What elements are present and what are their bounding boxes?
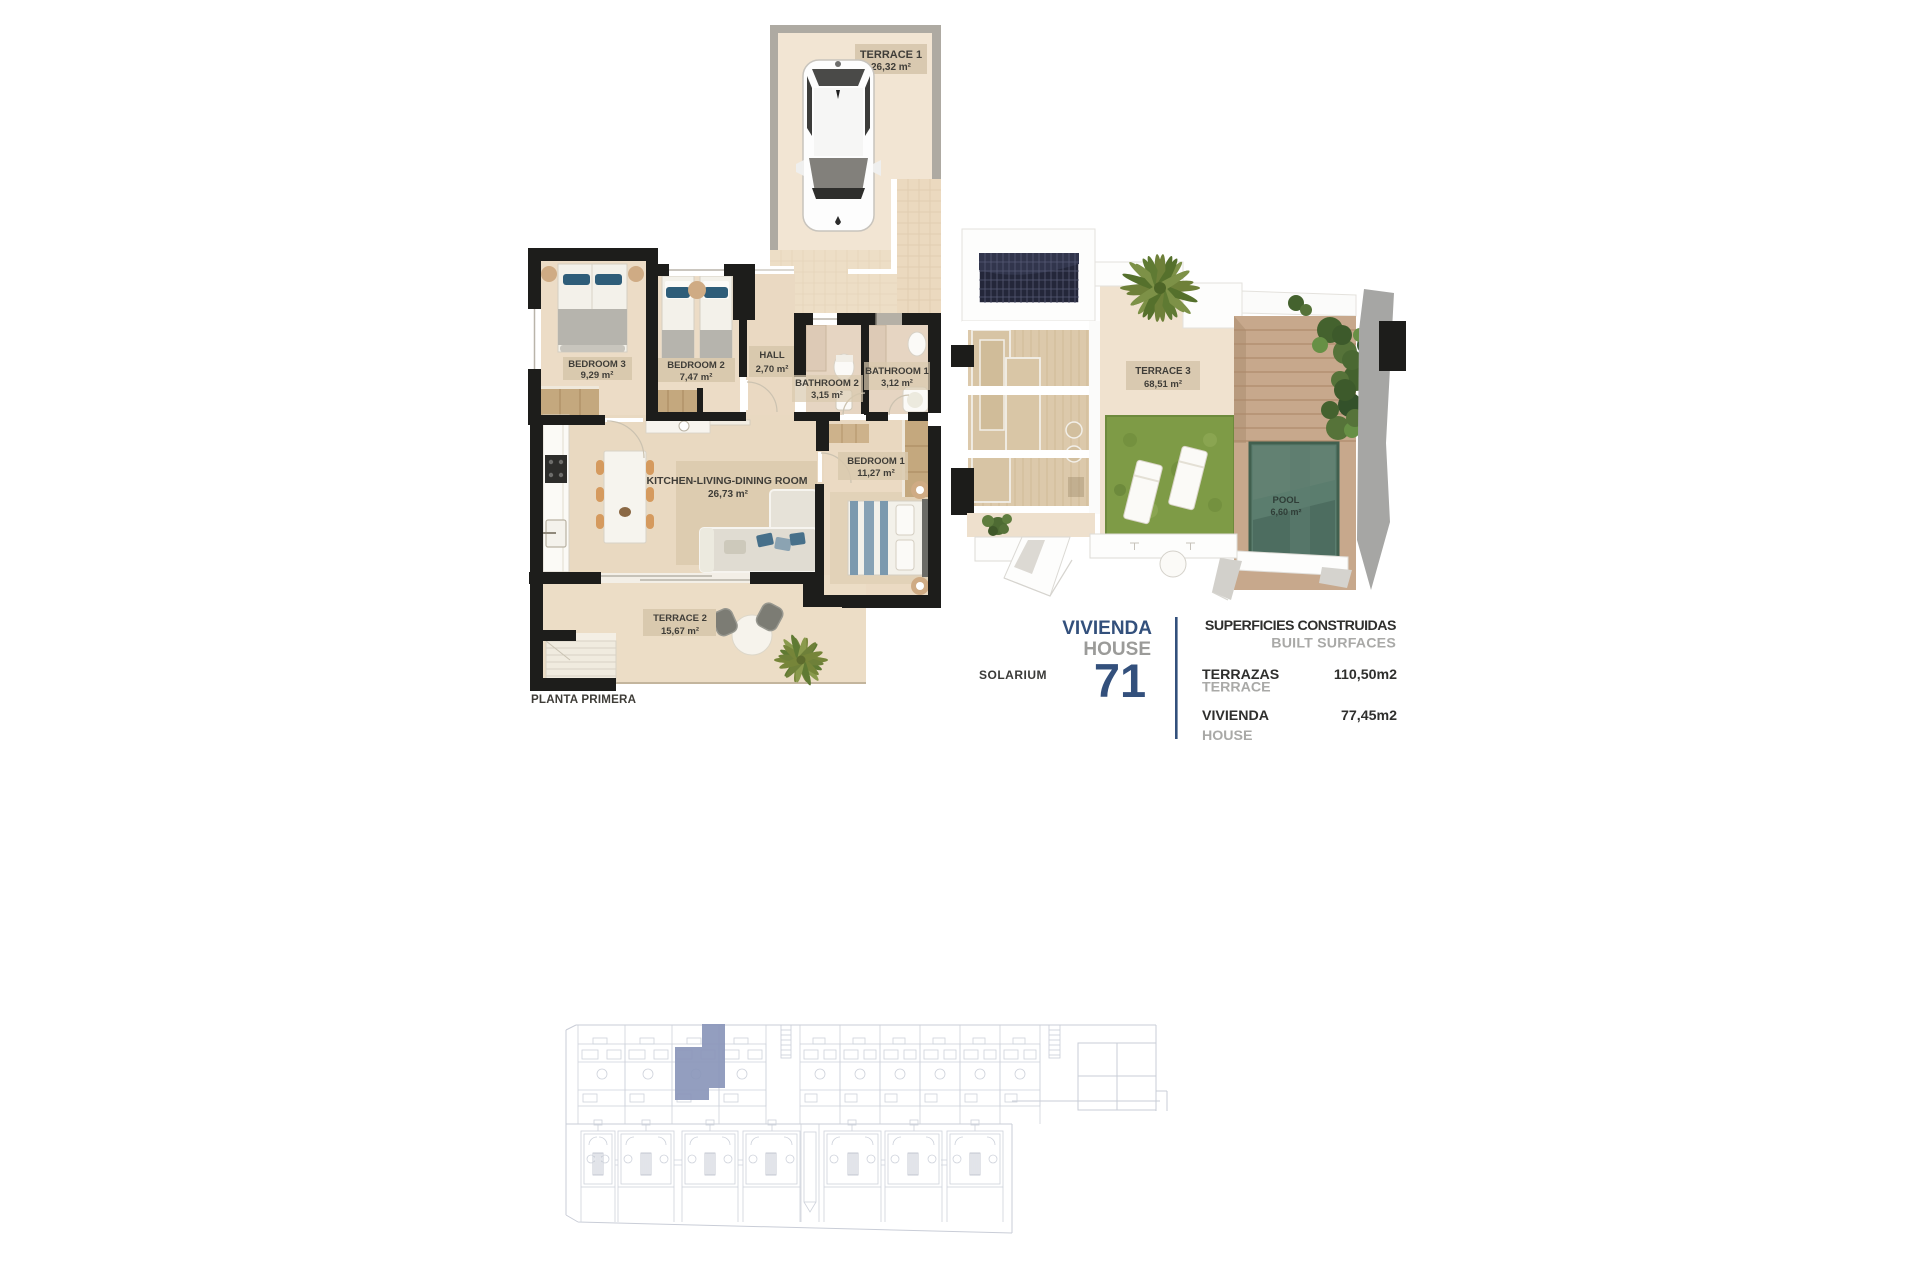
svg-text:TERRACE 2: TERRACE 2 <box>653 613 707 624</box>
svg-text:9,29 m²: 9,29 m² <box>581 370 614 381</box>
svg-text:26,73 m²: 26,73 m² <box>708 489 749 500</box>
svg-text:110,50m2: 110,50m2 <box>1334 667 1397 683</box>
svg-text:KITCHEN-LIVING-DINING ROOM: KITCHEN-LIVING-DINING ROOM <box>647 475 808 487</box>
svg-text:BEDROOM 2: BEDROOM 2 <box>667 360 725 371</box>
svg-text:77,45m2: 77,45m2 <box>1341 708 1397 724</box>
svg-text:TERRACE 3: TERRACE 3 <box>1135 366 1191 377</box>
svg-text:2,70 m²: 2,70 m² <box>756 364 789 375</box>
svg-text:68,51 m²: 68,51 m² <box>1144 379 1182 390</box>
svg-text:BEDROOM 1: BEDROOM 1 <box>847 456 905 467</box>
svg-text:15,67 m²: 15,67 m² <box>661 626 699 637</box>
svg-text:SOLARIUM: SOLARIUM <box>979 668 1047 682</box>
svg-text:26,32 m²: 26,32 m² <box>871 62 912 73</box>
svg-text:TERRACE 1: TERRACE 1 <box>860 49 922 61</box>
svg-text:BUILT SURFACES: BUILT SURFACES <box>1271 636 1396 652</box>
svg-text:POOL: POOL <box>1273 495 1300 506</box>
svg-text:TERRACE: TERRACE <box>1202 680 1271 696</box>
svg-text:11,27 m²: 11,27 m² <box>857 468 895 479</box>
svg-text:SUPERFICIES CONSTRUIDAS: SUPERFICIES CONSTRUIDAS <box>1205 618 1396 634</box>
svg-text:VIVIENDA: VIVIENDA <box>1062 618 1152 639</box>
svg-text:BEDROOM 3: BEDROOM 3 <box>568 359 626 370</box>
svg-text:3,15 m²: 3,15 m² <box>811 390 843 400</box>
svg-text:BATHROOM 2: BATHROOM 2 <box>795 378 859 389</box>
svg-text:3,12 m²: 3,12 m² <box>881 378 913 388</box>
svg-text:VIVIENDA: VIVIENDA <box>1202 708 1269 724</box>
svg-text:6,60 m²: 6,60 m² <box>1270 507 1301 517</box>
svg-text:71: 71 <box>1094 654 1146 707</box>
svg-text:BATHROOM 1: BATHROOM 1 <box>865 366 929 377</box>
svg-text:HOUSE: HOUSE <box>1202 728 1252 744</box>
svg-text:HALL: HALL <box>759 350 785 361</box>
svg-text:7,47 m²: 7,47 m² <box>680 372 713 383</box>
svg-text:PLANTA PRIMERA: PLANTA PRIMERA <box>531 693 637 706</box>
